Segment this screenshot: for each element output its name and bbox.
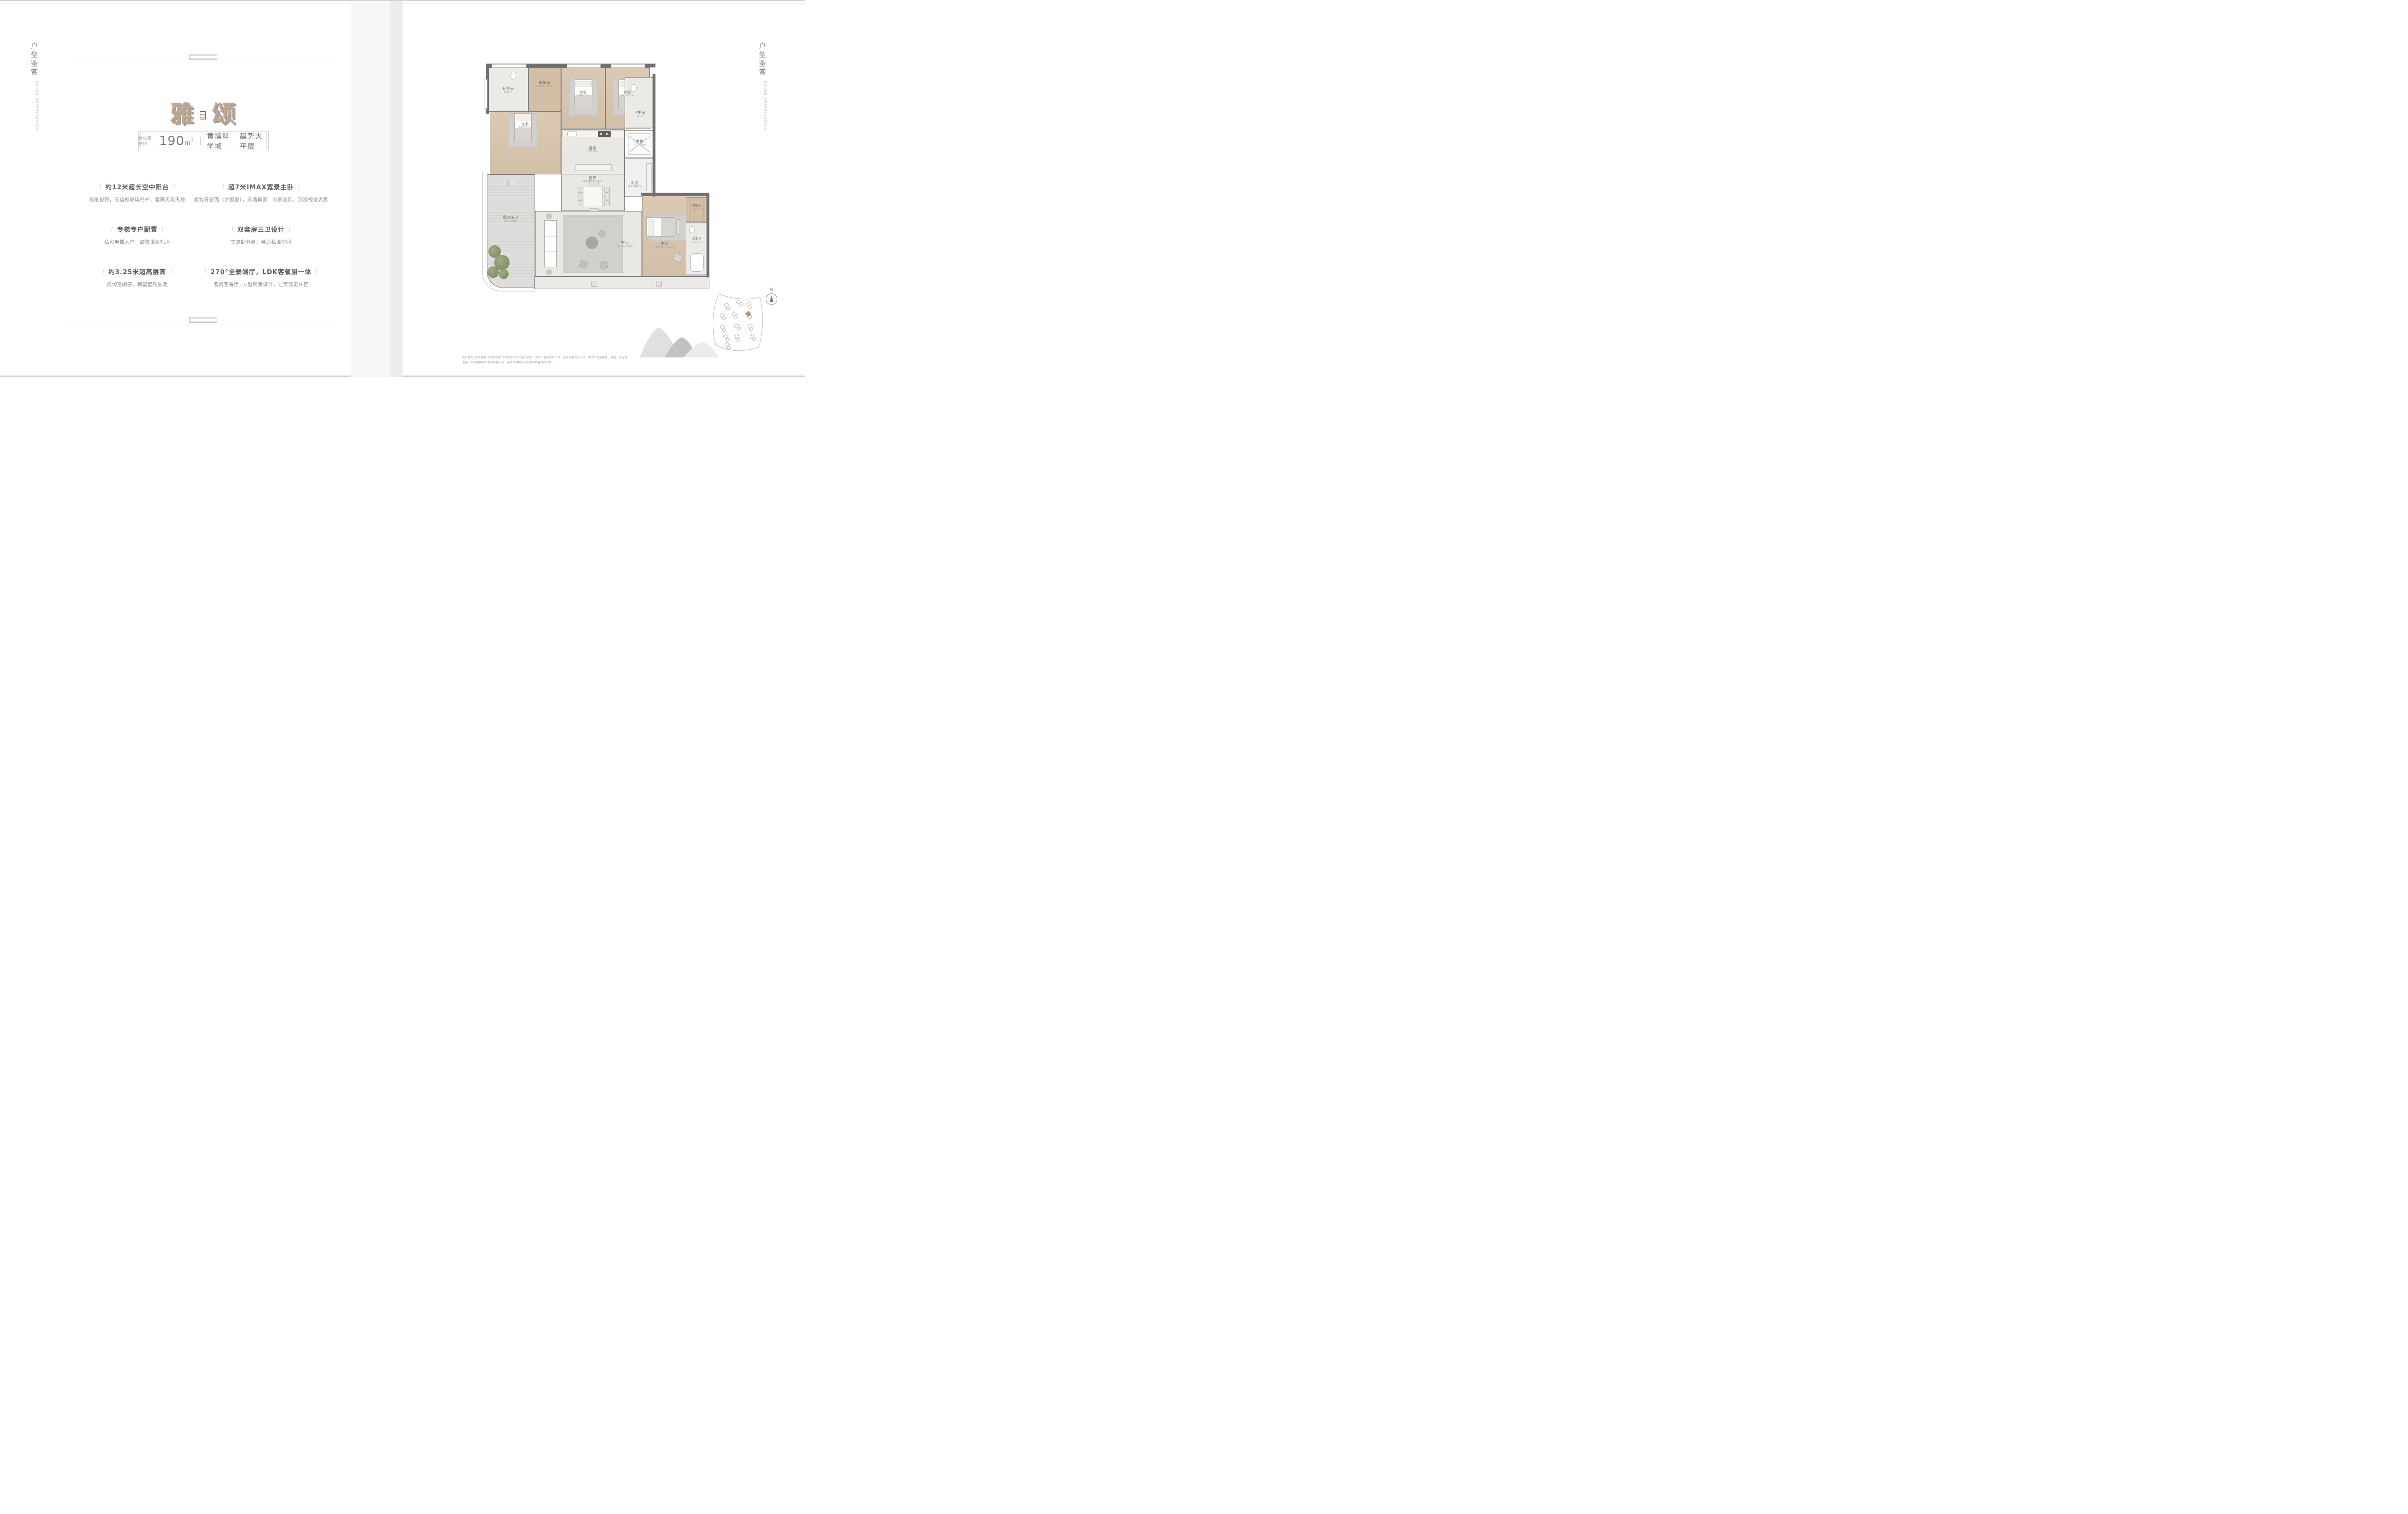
chair-icon bbox=[604, 187, 610, 193]
features-column-right: 超7米IMAX宽景主卧 极致开窗面（含飘窗），无墙幕窗、山景浴缸，沉浸视觉大赏 … bbox=[169, 182, 353, 309]
toilet-icon bbox=[510, 72, 516, 79]
page-gutter-shadow bbox=[390, 1, 403, 377]
page-edge-bottom bbox=[0, 376, 805, 377]
sofa-icon bbox=[544, 220, 557, 267]
coffee-table-icon bbox=[598, 230, 606, 237]
compass-needle-icon bbox=[766, 293, 777, 305]
brochure-spread: 户型鉴赏 HOUSE APPRECIATION 雅 颂 建筑面积约 190m2 … bbox=[0, 0, 805, 379]
room-master-bedroom: 主卧MASTER ROOM 衣帽间CLOAK ROOM 卫生间TOILET bbox=[642, 196, 709, 276]
window-icon bbox=[484, 79, 487, 109]
tick-icon bbox=[298, 184, 300, 189]
sidebar-title-en: HOUSE APPRECIATION bbox=[35, 81, 39, 131]
chair-icon bbox=[578, 194, 583, 199]
room-vestibule: 玄关VESRIBULE bbox=[625, 158, 654, 197]
area-badge: 建筑面积约 190m2 黄埔科学城 趋势大平层 bbox=[138, 131, 269, 151]
stool-icon bbox=[591, 281, 597, 287]
bed-icon bbox=[646, 217, 674, 237]
toilet-icon bbox=[689, 226, 694, 233]
page-edge-top bbox=[0, 0, 805, 1]
chair-icon bbox=[604, 194, 610, 199]
disclaimer-text: 本户型为“长岭雅居”项目8号楼02号房的平面户型示意图。不同户型的面积尺寸、空间… bbox=[462, 355, 630, 366]
room-master-toilet: 卫生间TOILET bbox=[686, 222, 708, 275]
room-kitchen: 厨房KITCHEN bbox=[561, 129, 625, 174]
feature-desc: 主次卧分离，奢适私谧空间 bbox=[169, 238, 353, 245]
room-lift-lobby: 电梯LIFT LOBBY bbox=[625, 130, 654, 158]
chair-icon bbox=[578, 187, 583, 193]
feature-desc: 奢阔客餐厅，U型厨房设计，让烹饪更从容 bbox=[169, 280, 353, 288]
compass: N bbox=[765, 288, 778, 305]
room-toilet-1: 卫生间TOILET bbox=[488, 67, 528, 112]
sidebar-title-cn: 户型鉴赏 bbox=[759, 42, 767, 78]
window-icon bbox=[492, 64, 526, 68]
bathtub-icon bbox=[690, 253, 704, 272]
wall bbox=[641, 193, 709, 196]
side-table-icon bbox=[546, 269, 552, 275]
feature-item: 270°全景端厅，LDK客餐厨一体 奢阔客餐厅，U型厨房设计，让烹饪更从容 bbox=[169, 267, 353, 288]
room-bedroom-2: 次卧BEDROOM bbox=[561, 67, 605, 129]
room-master-cloak: 衣帽间CLOAK ROOM bbox=[686, 197, 708, 222]
sink-icon bbox=[567, 132, 577, 136]
tick-icon bbox=[316, 269, 317, 274]
page-gutter bbox=[351, 1, 390, 377]
right-sidebar-label: 户型鉴赏 HOUSE APPRECIATION bbox=[759, 42, 773, 78]
stove-icon bbox=[598, 131, 611, 137]
tick-icon bbox=[103, 269, 104, 274]
title-char-2: 颂 bbox=[212, 102, 236, 126]
room-living: 客厅LIVING ROOM bbox=[535, 211, 642, 276]
page-edge-top-2 bbox=[0, 3, 805, 4]
tick-icon bbox=[222, 184, 224, 189]
badge-location: 黄埔科学城 bbox=[207, 131, 235, 151]
feature-title: 超7米IMAX宽景主卧 bbox=[169, 182, 353, 191]
wall bbox=[653, 74, 655, 197]
chair-icon bbox=[604, 200, 610, 206]
bottom-rule-ornament-icon bbox=[189, 317, 217, 323]
top-rule-ornament-icon bbox=[189, 54, 217, 60]
badge-tagline: 趋势大平层 bbox=[240, 131, 268, 151]
compass-north-label: N bbox=[765, 288, 778, 292]
room-toilet-2: 卫生间TOILET bbox=[625, 77, 654, 128]
room-cloak-1: 衣帽间CLOAK ROOM bbox=[528, 67, 561, 112]
area-value: 190m2 bbox=[159, 135, 194, 147]
side-table-icon bbox=[546, 213, 552, 219]
room-dining: 餐厅DINNING ROOM bbox=[561, 174, 625, 211]
feature-title: 270°全景端厅，LDK客餐厨一体 bbox=[169, 267, 353, 276]
tick-icon bbox=[100, 184, 101, 189]
chair-icon bbox=[578, 200, 583, 206]
bench-icon bbox=[676, 219, 680, 235]
seal-stamp-icon bbox=[200, 111, 206, 119]
badge-divider bbox=[200, 137, 201, 145]
kitchen-island-icon bbox=[575, 164, 612, 171]
product-title: 雅 颂 bbox=[135, 102, 270, 126]
window-icon bbox=[611, 64, 645, 68]
plant-icon bbox=[487, 266, 499, 278]
left-sidebar-label: 户型鉴赏 HOUSE APPRECIATION bbox=[31, 42, 45, 78]
room-bedroom-1: 次卧BEDROOM bbox=[490, 112, 561, 174]
tick-icon bbox=[111, 226, 113, 232]
plant-icon bbox=[499, 269, 509, 279]
page-edge-bottom-2 bbox=[0, 375, 805, 376]
armchair-icon bbox=[672, 252, 683, 263]
area-prefix: 建筑面积约 bbox=[139, 136, 155, 146]
floor-plan: 卫生间TOILET 衣帽间CLOAK ROOM 次卧BEDROOM 次卧BEDR… bbox=[480, 60, 711, 290]
sidebar-title-en: HOUSE APPRECIATION bbox=[763, 81, 767, 131]
feature-desc: 极致开窗面（含飘窗），无墙幕窗、山景浴缸，沉浸视觉大赏 bbox=[169, 196, 353, 203]
coffee-table-icon bbox=[586, 237, 598, 249]
feature-item: 超7米IMAX宽景主卧 极致开窗面（含飘窗），无墙幕窗、山景浴缸，沉浸视觉大赏 bbox=[169, 182, 353, 203]
window-icon bbox=[567, 64, 601, 68]
sidebar-title-cn: 户型鉴赏 bbox=[31, 42, 39, 78]
dining-table-icon bbox=[584, 186, 603, 207]
tick-icon bbox=[289, 226, 290, 232]
tick-icon bbox=[232, 226, 233, 232]
feature-title: 双套房三卫设计 bbox=[169, 224, 353, 234]
title-char-1: 雅 bbox=[170, 102, 194, 126]
site-plan-diagram bbox=[636, 285, 780, 358]
tick-icon bbox=[162, 226, 163, 232]
tick-icon bbox=[205, 269, 206, 274]
feature-item: 双套房三卫设计 主次卧分离，奢适私谧空间 bbox=[169, 224, 353, 245]
